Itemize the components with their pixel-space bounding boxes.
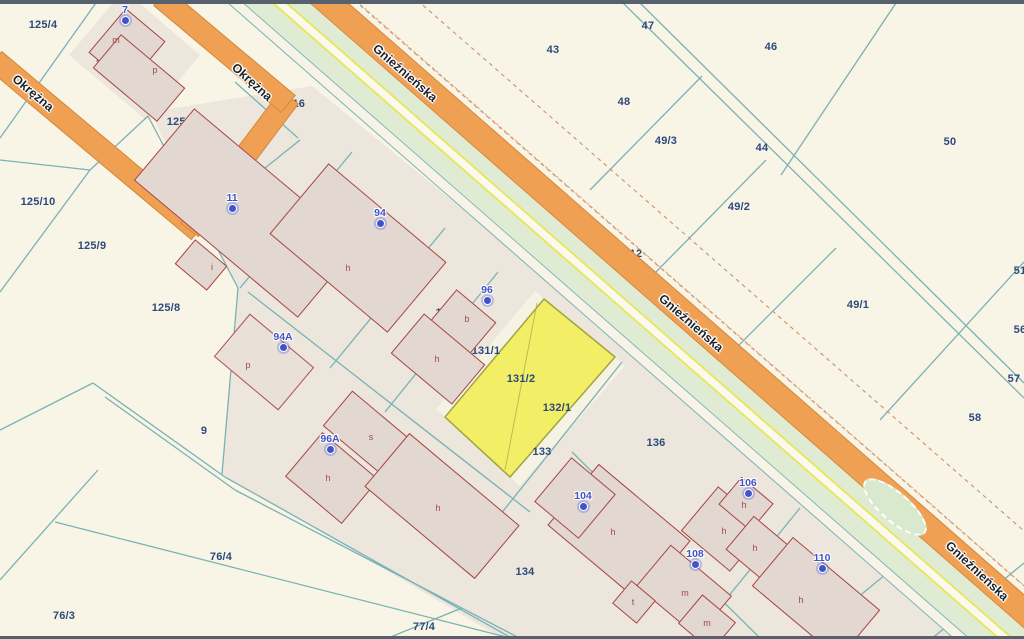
- building-label: h: [345, 263, 350, 273]
- parcel-label-51: 51: [1014, 265, 1024, 277]
- address-marker-number: 104: [574, 490, 592, 502]
- address-point-icon: [326, 445, 335, 454]
- parcel-label-49-2: 49/2: [728, 201, 750, 213]
- address-point-icon: [579, 502, 588, 511]
- address-point-icon: [691, 560, 700, 569]
- parcel-label-46: 46: [765, 41, 778, 53]
- address-point-icon: [483, 296, 492, 305]
- building-label: m: [681, 588, 689, 598]
- building-label: b: [464, 314, 469, 324]
- address-point-icon: [376, 219, 385, 228]
- address-marker-number: 96: [481, 284, 493, 296]
- parcel-label-77-4: 77/4: [413, 621, 435, 633]
- address-marker-number: 96A: [320, 433, 339, 445]
- parcel-label-48: 48: [618, 96, 631, 108]
- building-label: h: [752, 543, 757, 553]
- building-label: h: [721, 526, 726, 536]
- building-label: m: [703, 618, 711, 628]
- building-label: p: [245, 360, 250, 370]
- building-label: m: [112, 35, 120, 45]
- address-marker-number: 110: [814, 552, 831, 564]
- parcel-label-134: 134: [516, 566, 535, 578]
- building-label: h: [325, 473, 330, 483]
- address-marker-number: 94: [374, 207, 386, 219]
- building-label: p: [152, 65, 157, 75]
- building-label: i: [211, 262, 213, 272]
- parcel-label-58: 58: [969, 412, 982, 424]
- parcel-label-125-8: 125/8: [152, 302, 181, 314]
- address-marker-number: 7: [122, 4, 128, 16]
- parcel-label-125-4: 125/4: [29, 19, 58, 31]
- parcel-label-133: 133: [533, 446, 552, 458]
- building-label: h: [798, 595, 803, 605]
- parcel-label-57: 57: [1008, 373, 1021, 385]
- address-marker-number: 94A: [273, 331, 292, 343]
- address-marker-number: 106: [739, 477, 757, 489]
- parcel-label-125-10: 125/10: [21, 196, 56, 208]
- parcel-label-49-3: 49/3: [655, 135, 677, 147]
- building-label: h: [610, 527, 615, 537]
- address-marker-number: 108: [686, 548, 704, 560]
- parcel-label-47: 47: [642, 20, 655, 32]
- parcel-label-56: 56: [1014, 324, 1024, 336]
- parcel-label-131-2: 131/2: [507, 373, 536, 385]
- building-label: s: [369, 432, 374, 442]
- parcel-label-136: 136: [647, 437, 666, 449]
- parcel-label-76-3: 76/3: [53, 610, 75, 622]
- parcel-label-44: 44: [756, 142, 769, 154]
- address-point-icon: [744, 489, 753, 498]
- parcel-label-76-4: 76/4: [210, 551, 232, 563]
- address-point-icon: [279, 343, 288, 352]
- address-marker-number: 11: [226, 192, 237, 204]
- address-point-icon: [818, 564, 827, 573]
- building-label: t: [632, 597, 635, 607]
- top-bar: [0, 0, 1024, 4]
- parcel-label-9: 9: [201, 425, 207, 437]
- building-label: h: [434, 354, 439, 364]
- map-canvas[interactable]: 125/4125/5125/65/16125/7125/10125/9125/8…: [0, 0, 1024, 639]
- parcel-label-49-1: 49/1: [847, 299, 869, 311]
- building-label: h: [435, 503, 440, 513]
- building-label: h: [741, 500, 746, 510]
- parcel-label-50: 50: [944, 136, 957, 148]
- address-point-icon: [121, 16, 130, 25]
- parcel-label-43: 43: [547, 44, 560, 56]
- parcel-label-125-9: 125/9: [78, 240, 107, 252]
- parcel-label-132-1: 132/1: [543, 402, 572, 414]
- address-point-icon: [228, 204, 237, 213]
